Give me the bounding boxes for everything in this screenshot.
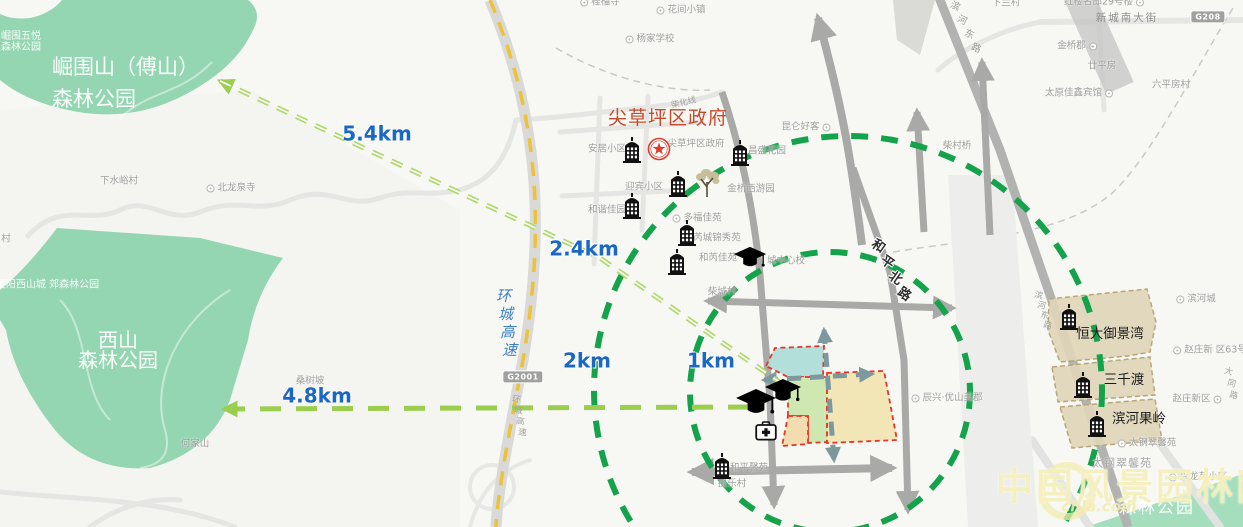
building-icon [622, 193, 642, 219]
building-icon [1087, 411, 1107, 437]
building-icon [730, 140, 750, 166]
hospital-medkit-icon [755, 421, 777, 441]
building-icon [668, 171, 688, 197]
school-graduation-cap-icon [764, 378, 802, 405]
building-icon [712, 453, 732, 479]
government-star-icon [647, 137, 671, 161]
school-graduation-cap-icon [733, 246, 767, 270]
building-icon [1059, 304, 1079, 330]
park-tree-icon [693, 168, 721, 198]
building-icon [667, 249, 687, 275]
building-icon [677, 220, 697, 246]
building-icon [1073, 372, 1093, 398]
icon-layer [0, 0, 1243, 527]
map-canvas[interactable]: 崛围山（傅山） 森林公园西山 森林公园森林公园崛围五悦 森林公园梗阳西山城 郊森… [0, 0, 1243, 527]
building-icon [622, 137, 642, 163]
